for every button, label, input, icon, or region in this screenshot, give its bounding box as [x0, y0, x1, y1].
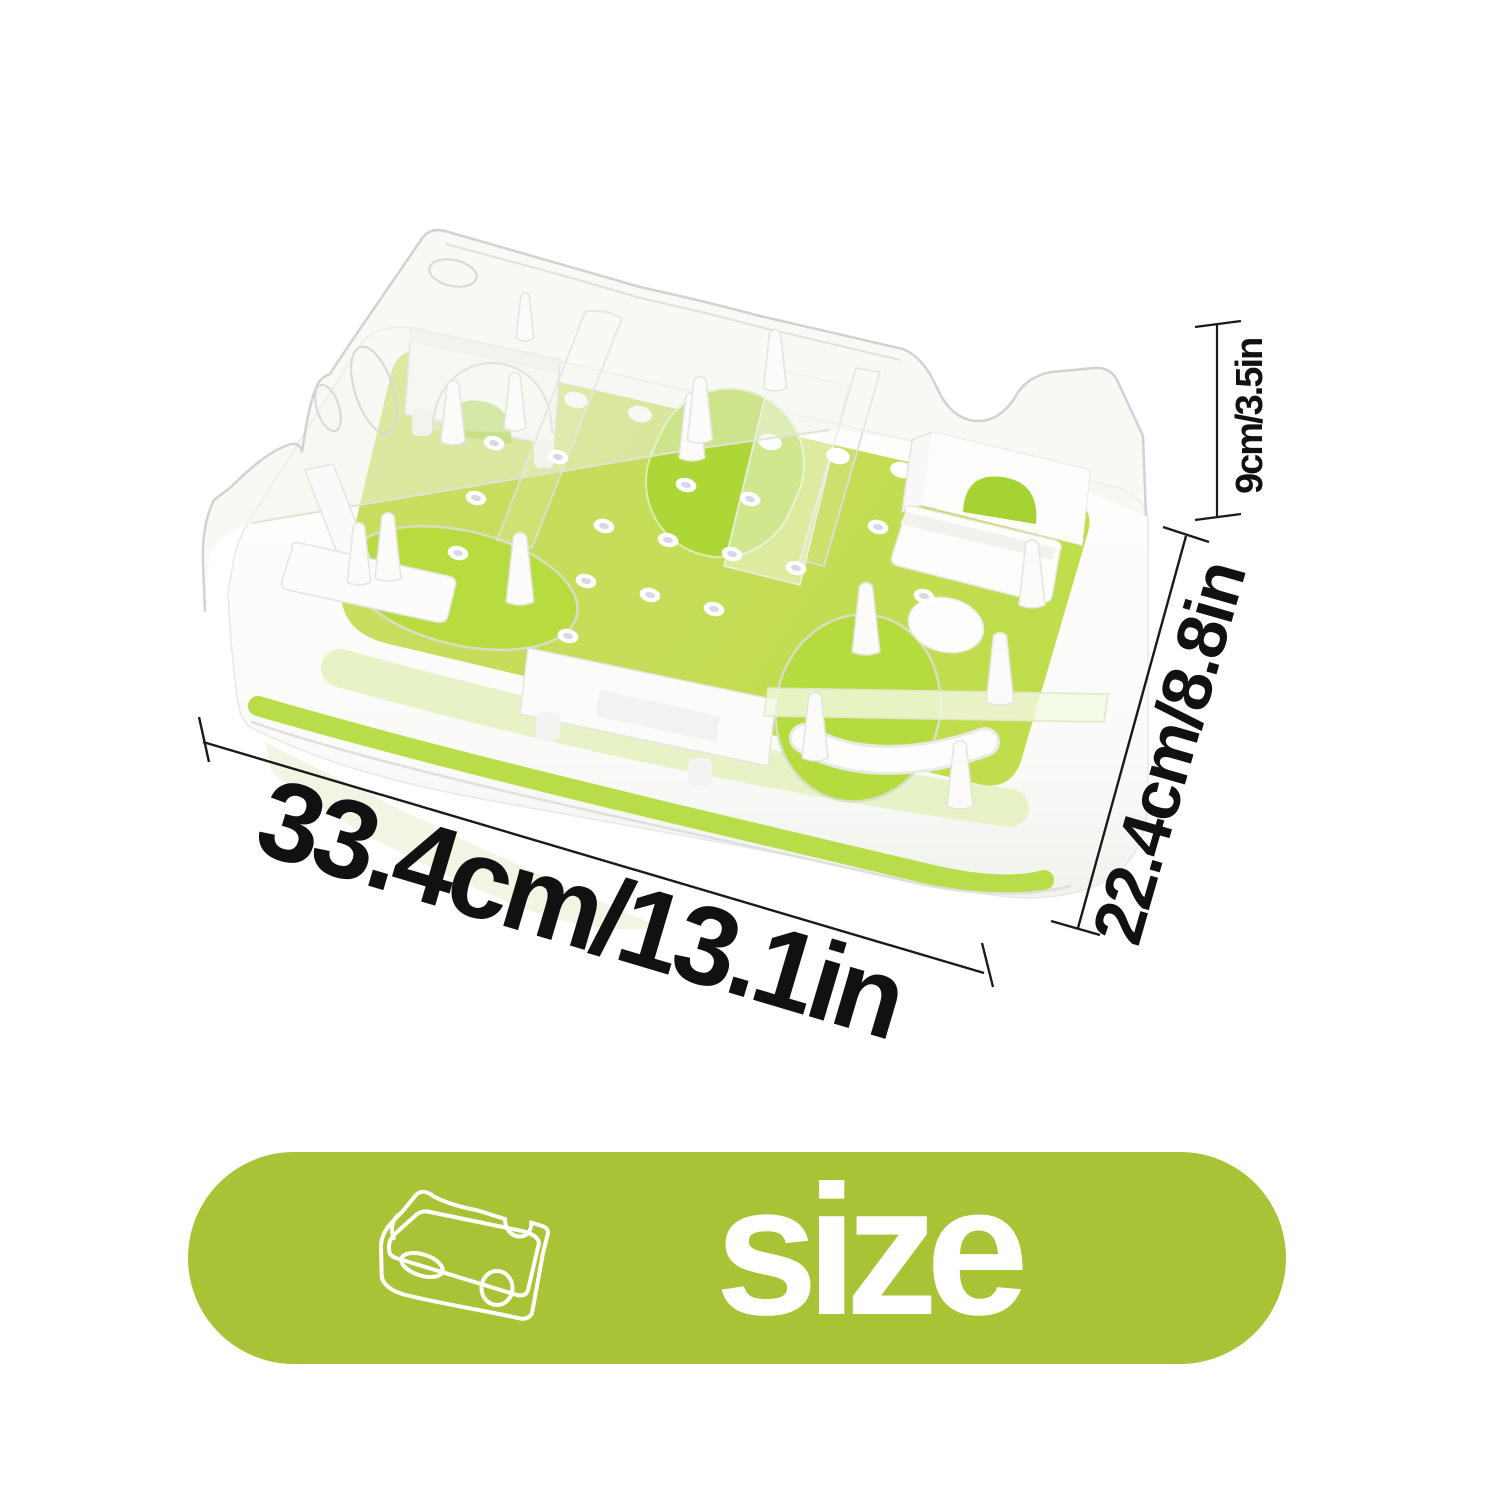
- svg-text:9cm/3.5in: 9cm/3.5in: [1229, 339, 1271, 494]
- svg-text:size: size: [715, 1148, 1023, 1354]
